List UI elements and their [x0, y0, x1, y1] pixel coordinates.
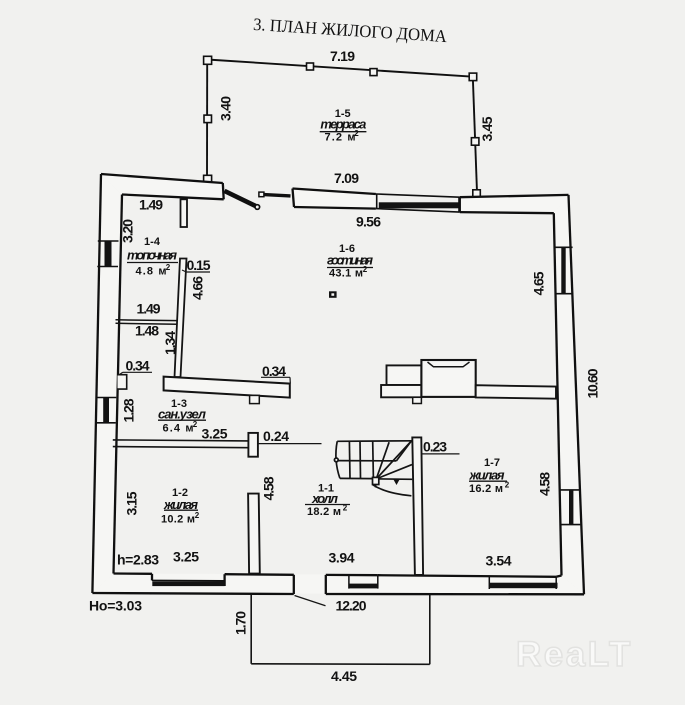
svg-text:h=2.83: h=2.83 [117, 552, 159, 568]
svg-text:3.15: 3.15 [124, 491, 140, 515]
svg-text:2: 2 [195, 511, 200, 520]
svg-text:12.20: 12.20 [336, 598, 367, 614]
svg-text:2: 2 [166, 263, 171, 272]
svg-text:4.58: 4.58 [261, 476, 277, 500]
svg-text:18.2 м: 18.2 м [307, 506, 341, 518]
svg-text:10.60: 10.60 [585, 368, 601, 398]
svg-text:Но=3.03: Но=3.03 [89, 598, 142, 614]
svg-text:3.54: 3.54 [486, 553, 512, 569]
svg-text:4.65: 4.65 [531, 271, 547, 295]
svg-text:сан.узел: сан.узел [158, 407, 206, 422]
svg-text:0.23: 0.23 [423, 439, 447, 455]
svg-text:4.8 м: 4.8 м [136, 266, 167, 278]
svg-text:3.45: 3.45 [479, 116, 495, 141]
svg-text:3.25: 3.25 [202, 426, 228, 442]
svg-text:2: 2 [363, 265, 368, 274]
svg-text:10.2 м: 10.2 м [161, 514, 195, 526]
svg-text:3.25: 3.25 [173, 549, 199, 565]
svg-text:2: 2 [343, 504, 348, 513]
svg-text:1.49: 1.49 [139, 197, 163, 213]
svg-text:холл: холл [311, 491, 338, 506]
svg-text:7.09: 7.09 [334, 170, 359, 186]
svg-text:4.58: 4.58 [537, 472, 553, 496]
svg-text:2: 2 [193, 420, 198, 429]
svg-text:0.34: 0.34 [262, 363, 286, 379]
svg-text:ReaLT: ReaLT [516, 635, 633, 674]
svg-text:43.1 м: 43.1 м [329, 268, 363, 280]
svg-text:3.20: 3.20 [120, 219, 136, 243]
svg-text:4.66: 4.66 [190, 276, 206, 300]
svg-text:7.2 м: 7.2 м [325, 132, 356, 144]
svg-text:топочная: топочная [127, 248, 177, 263]
svg-text:жилая: жилая [469, 468, 505, 483]
svg-text:9.56: 9.56 [356, 214, 381, 230]
svg-text:1.48: 1.48 [135, 323, 159, 339]
svg-text:0.34: 0.34 [126, 358, 150, 374]
svg-text:1.70: 1.70 [233, 611, 249, 635]
svg-text:7.19: 7.19 [330, 48, 355, 64]
svg-text:1.34: 1.34 [162, 331, 178, 355]
svg-text:2: 2 [354, 129, 359, 138]
svg-text:2: 2 [505, 481, 510, 490]
svg-text:3.40: 3.40 [218, 96, 234, 121]
svg-text:16.2 м: 16.2 м [469, 483, 503, 495]
svg-text:0.15: 0.15 [187, 257, 211, 273]
svg-text:1-4: 1-4 [144, 236, 161, 248]
svg-text:3.94: 3.94 [329, 550, 355, 566]
svg-text:1.49: 1.49 [137, 301, 161, 317]
svg-text:1.28: 1.28 [121, 398, 137, 422]
svg-text:0.24: 0.24 [263, 428, 289, 444]
svg-text:6.4 м: 6.4 м [163, 423, 194, 435]
svg-text:4.45: 4.45 [331, 668, 357, 684]
svg-text:терраса: терраса [320, 117, 366, 132]
